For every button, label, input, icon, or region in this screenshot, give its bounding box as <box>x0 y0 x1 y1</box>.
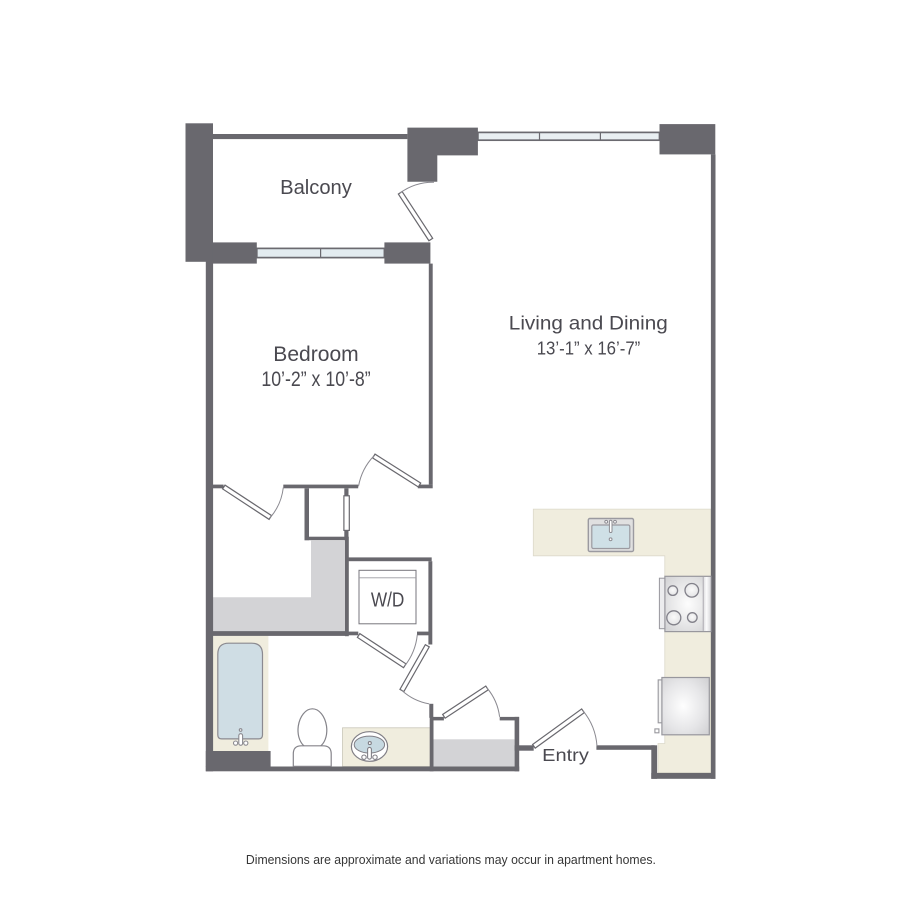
svg-text:Bedroom: Bedroom <box>273 342 358 366</box>
svg-text:10’-2” x 10’-8”: 10’-2” x 10’-8” <box>261 368 370 391</box>
svg-text:Balcony: Balcony <box>280 177 352 199</box>
svg-text:Living and Dining: Living and Dining <box>509 313 668 335</box>
svg-text:Entry: Entry <box>542 745 589 765</box>
svg-text:Dimensions are approximate and: Dimensions are approximate and variation… <box>246 852 656 867</box>
svg-text:13’-1” x 16’-7”: 13’-1” x 16’-7” <box>537 337 641 358</box>
svg-text:W/D: W/D <box>371 590 405 612</box>
